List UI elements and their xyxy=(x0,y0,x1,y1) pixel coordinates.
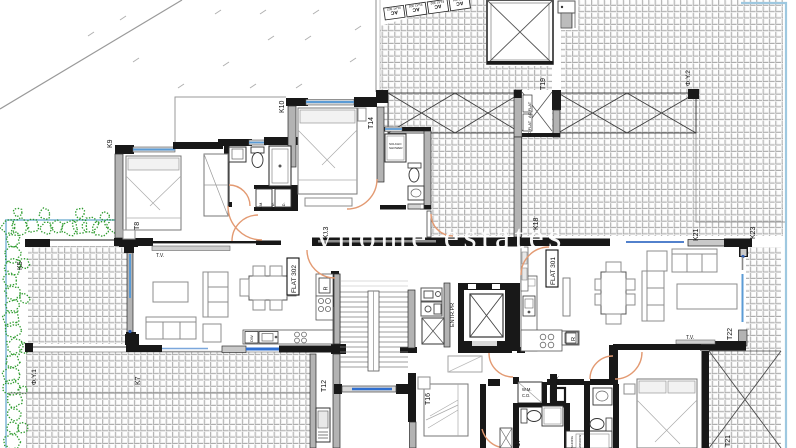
svg-text:AC FLAT: AC FLAT xyxy=(527,101,532,118)
svg-text:Φ.Y.2: Φ.Y.2 xyxy=(685,70,692,86)
svg-text:K9: K9 xyxy=(107,139,114,148)
svg-text:WINDOW: WINDOW xyxy=(578,435,582,448)
svg-text:T22: T22 xyxy=(727,328,734,340)
svg-text:SHOWER: SHOWER xyxy=(389,146,403,150)
svg-text:R: R xyxy=(324,287,330,291)
svg-text:K21: K21 xyxy=(693,228,700,241)
svg-text:T21: T21 xyxy=(725,435,732,447)
svg-text:K23: K23 xyxy=(750,226,757,239)
svg-text:T14: T14 xyxy=(368,117,375,129)
svg-text:T12: T12 xyxy=(321,380,328,392)
svg-text:AC: AC xyxy=(455,0,463,6)
svg-text:AC: AC xyxy=(433,3,441,10)
svg-text:T8: T8 xyxy=(134,222,141,230)
svg-text:E.P.: E.P. xyxy=(555,376,560,384)
svg-text:T16: T16 xyxy=(425,393,432,405)
svg-text:T.V.: T.V. xyxy=(686,335,694,341)
svg-text:FLAT 301: FLAT 301 xyxy=(550,257,557,285)
svg-text:AC: AC xyxy=(412,6,420,13)
svg-text:W.M.: W.M. xyxy=(259,202,263,210)
svg-text:R: R xyxy=(571,337,577,341)
svg-text:AC FLAT: AC FLAT xyxy=(527,120,532,137)
svg-text:W.M.: W.M. xyxy=(522,387,532,392)
svg-text:K5: K5 xyxy=(17,261,24,270)
svg-text:C.D.: C.D. xyxy=(522,393,530,398)
svg-text:T.V.: T.V. xyxy=(156,253,164,259)
svg-text:SLIDING: SLIDING xyxy=(570,435,574,448)
svg-text:T17: T17 xyxy=(515,439,522,448)
svg-text:AC: AC xyxy=(390,9,398,16)
svg-text:Myhome estates: Myhome estates xyxy=(281,219,566,256)
svg-text:FLAT 302: FLAT 302 xyxy=(291,265,298,293)
svg-text:Φ.Y.1: Φ.Y.1 xyxy=(31,369,38,385)
svg-text:K7: K7 xyxy=(135,376,142,385)
svg-text:T19: T19 xyxy=(540,78,547,90)
svg-text:C.D.: C.D. xyxy=(282,202,286,210)
svg-text:DW: DW xyxy=(249,335,254,342)
svg-text:E.W.: E.W. xyxy=(271,202,275,210)
svg-text:ENTR.PR: ENTR.PR xyxy=(450,303,456,327)
svg-text:K10: K10 xyxy=(279,100,286,113)
